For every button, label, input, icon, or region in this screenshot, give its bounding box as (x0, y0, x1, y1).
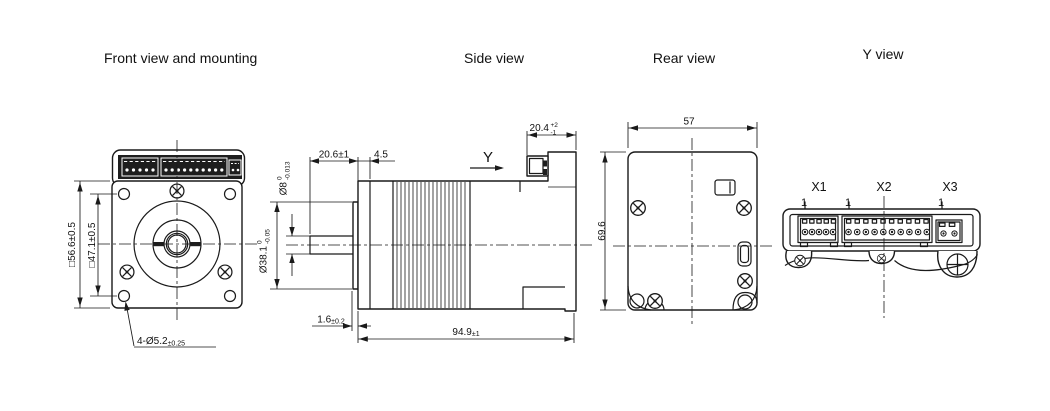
label-x3: X3 (942, 180, 957, 194)
dim-bolt-square: □47.1±0.5 (87, 222, 98, 267)
svg-text:Ø38.1: Ø38.1 (259, 246, 270, 274)
svg-text:-0.013: -0.013 (285, 161, 292, 180)
dim-rear-height: 69.6 (597, 221, 608, 241)
side-view: Side view Y (257, 50, 595, 343)
label-x1: X1 (811, 180, 826, 194)
label-x2: X2 (876, 180, 891, 194)
dim-front-plate: 4.5 (374, 150, 388, 161)
pin1-x2: 1 (845, 197, 851, 209)
dim-pilot-height: 1.6±0.2 (317, 315, 345, 326)
dim-body-length: 94.9±1 (452, 327, 479, 338)
dim-rear-width: 57 (683, 117, 695, 128)
y-view-title: Y view (863, 46, 905, 62)
pin1-x3: 1 (938, 197, 944, 209)
y-screw-right (947, 254, 968, 275)
svg-text:0: 0 (257, 240, 264, 244)
y-view: Y view (783, 46, 980, 318)
front-connector-panel (118, 155, 242, 179)
svg-text:0: 0 (277, 176, 284, 180)
dim-shaft-length: 20.6±1 (319, 150, 350, 161)
drawing-sheet: Front view and mounting (0, 0, 1050, 411)
front-view-title: Front view and mounting (104, 50, 257, 66)
svg-text:20.4: 20.4 (530, 123, 550, 134)
pin1-x1: 1 (801, 197, 807, 209)
svg-text:-1: -1 (551, 130, 557, 137)
rear-body (628, 152, 757, 310)
dim-pilot-dia: Ø38.1 0 -0.05 (257, 229, 272, 273)
rear-view-title: Rear view (653, 50, 716, 66)
side-view-title: Side view (464, 50, 525, 66)
side-pilot-boss (353, 202, 358, 289)
dim-outer-square: □56.6±0.5 (67, 222, 78, 267)
rear-view: Rear view 57 69.6 (597, 50, 772, 324)
side-view-direction: Y (470, 149, 504, 171)
y-direction-label: Y (483, 149, 493, 166)
front-view: Front view and mounting (67, 50, 258, 348)
side-rear-connector (527, 156, 548, 176)
dim-shaft-dia: Ø8 0 -0.013 (277, 161, 292, 195)
svg-text:Ø8: Ø8 (279, 182, 290, 196)
dim-mount-holes: 4-Ø5.2±0.25 (137, 336, 185, 348)
svg-text:+2: +2 (551, 122, 559, 129)
svg-text:-0.05: -0.05 (265, 229, 272, 244)
y-labels: X1 X2 X3 1 1 1 (801, 180, 958, 209)
